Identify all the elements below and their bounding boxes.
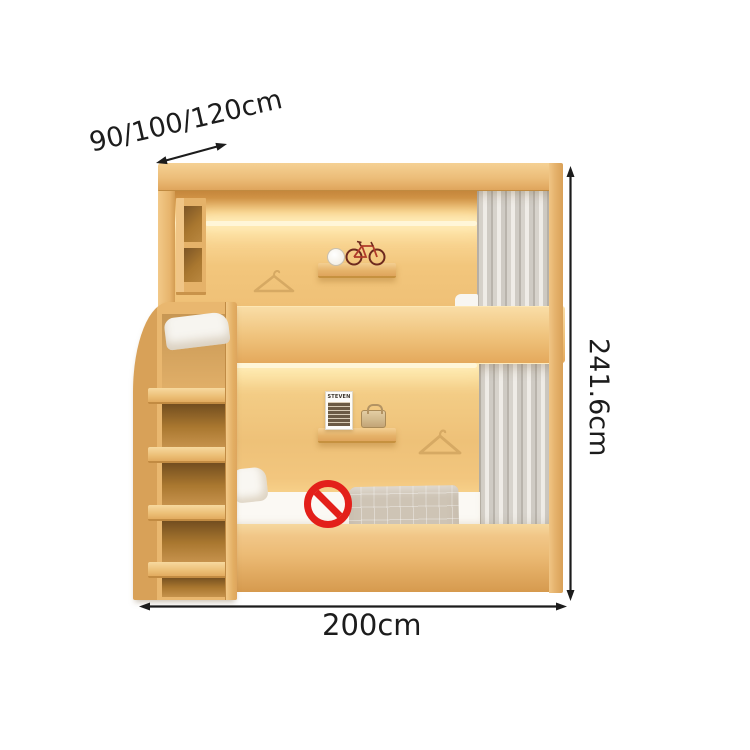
right-frame-post: [549, 163, 563, 593]
cabinet-cell: [184, 248, 202, 282]
vintage-radio-icon: [361, 410, 386, 428]
lower-led-strip: [235, 363, 477, 368]
depth-dimension-label: 90/100/120cm: [87, 84, 286, 158]
cabinet-cell: [184, 206, 202, 242]
depth-arrow: [156, 143, 227, 164]
staircase-step: [148, 447, 225, 463]
photo-collage-frame: STEVEN: [325, 391, 353, 430]
poster-title: STEVEN: [327, 394, 350, 400]
staircase-opening: [162, 576, 225, 597]
lower-bed-base-panel: [230, 524, 563, 592]
clothes-hanger-icon: [416, 425, 464, 458]
upper-led-strip: [205, 221, 477, 226]
upper-curtain: [477, 189, 550, 308]
lower-wall-shelf: [318, 428, 396, 443]
product-dimension-image: STEVEN: [0, 0, 750, 750]
upper-bunk-guard-rail: [230, 306, 565, 363]
staircase-step: [148, 505, 225, 521]
clothes-hanger-icon: [251, 266, 297, 296]
top-frame-beam: [158, 163, 563, 191]
wall-cabinet: [176, 198, 206, 295]
poster-photo-grid: [328, 402, 350, 426]
staircase-step: [148, 562, 225, 578]
width-dimension-label: 200cm: [322, 608, 414, 642]
height-arrow: [567, 166, 575, 601]
alarm-clock-icon: [327, 248, 345, 266]
staircase-opening: [162, 402, 225, 447]
staircase-step: [148, 388, 225, 404]
staircase-opening: [162, 461, 225, 505]
prohibition-icon: [304, 480, 352, 528]
staircase-right-stringer: [225, 302, 237, 600]
bicycle-icon: [345, 237, 387, 266]
height-dimension-label: 241.6cm: [583, 338, 614, 456]
lower-curtain: [479, 364, 551, 532]
staircase-opening: [162, 519, 225, 562]
